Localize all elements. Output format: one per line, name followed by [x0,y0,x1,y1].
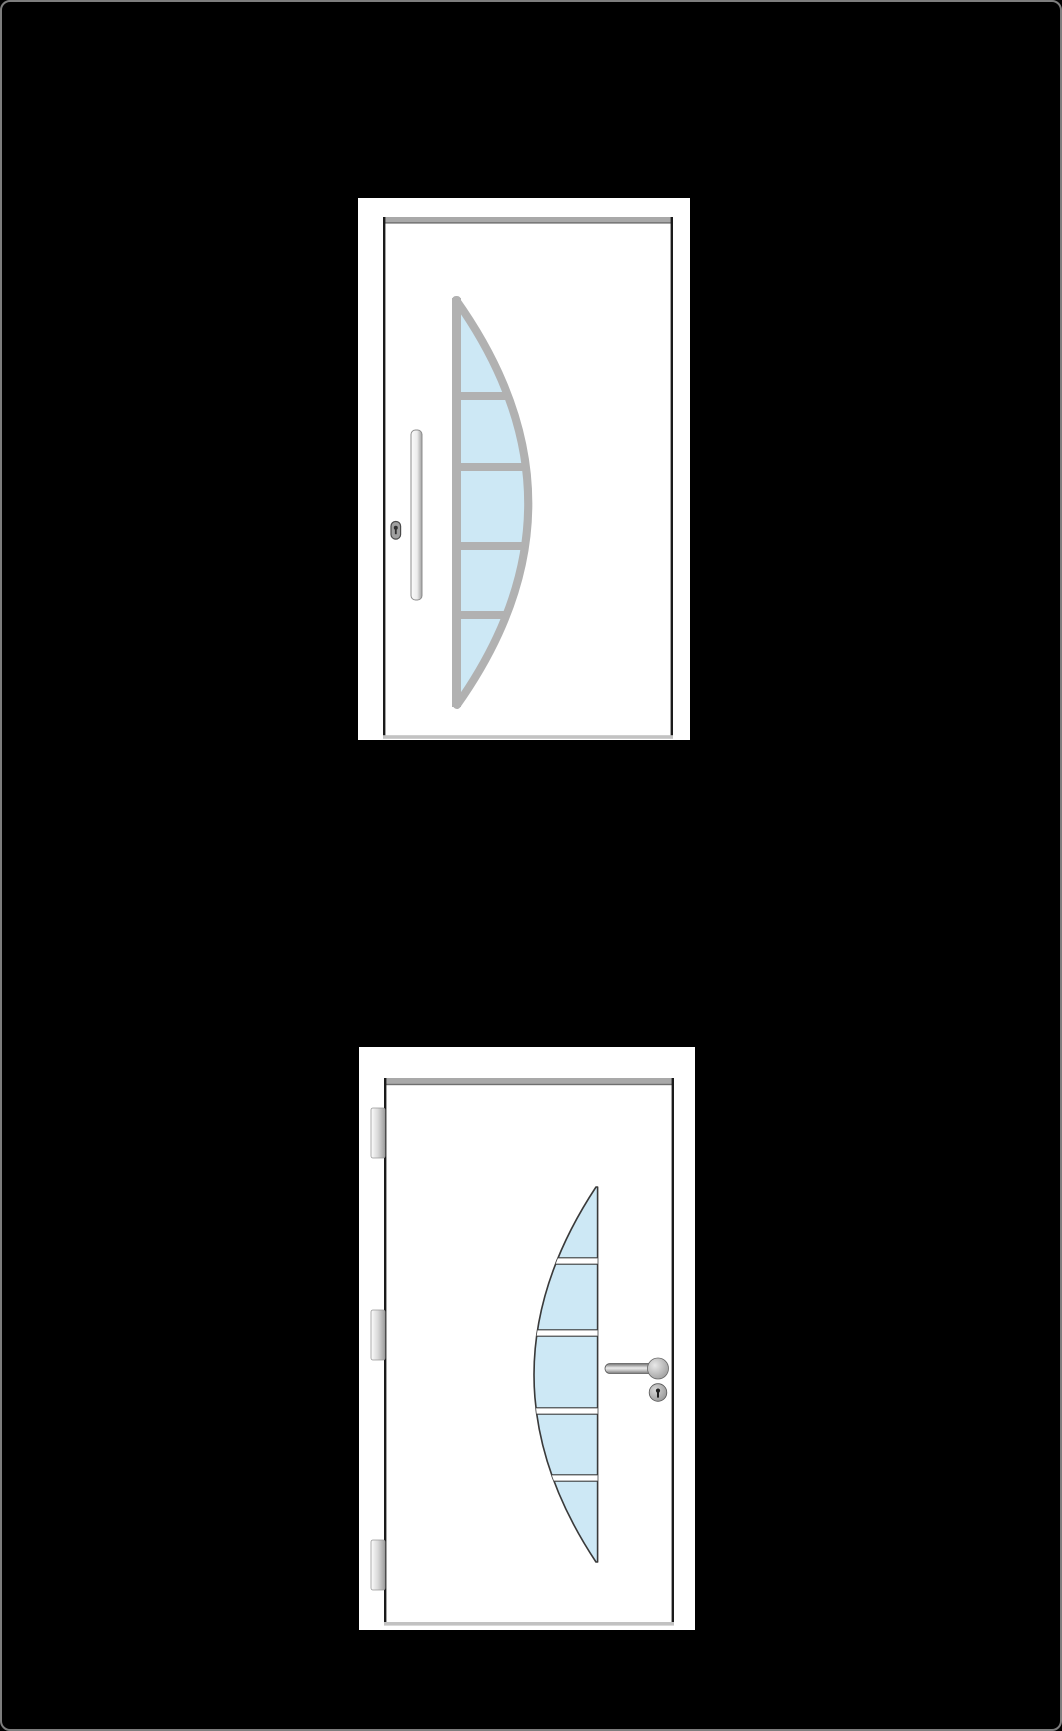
threshold [384,1622,674,1626]
door-image-bottom[interactable] [359,1047,695,1630]
keyhole-lock[interactable] [391,522,401,540]
leaf-edge-right [671,217,673,737]
handle-rose [648,1358,669,1379]
glass-crescent [459,1187,604,1562]
glass-lens [534,1187,598,1562]
glass-lens [456,300,528,705]
hinges [371,1108,385,1590]
leaf-edge-right [672,1078,674,1622]
door-hinge [371,1540,385,1590]
door-illustration-bottom [359,1047,695,1630]
lever-handle[interactable] [605,1358,669,1379]
head-jamb [384,1078,674,1085]
lock-cylinder[interactable] [649,1384,667,1402]
head-jamb-shadow [383,222,673,223]
bar-pull-handle[interactable] [411,430,422,600]
glass-stile-bar [452,298,461,707]
door-hinge [371,1108,385,1158]
product-gallery [0,0,1062,1731]
door-hinge [371,1310,385,1360]
glass-crescent [448,298,548,707]
door-illustration-top [358,198,690,740]
door-image-top[interactable] [358,198,690,740]
leaf-edge-left [383,217,385,737]
threshold [383,735,673,739]
head-jamb-shadow [384,1084,674,1085]
